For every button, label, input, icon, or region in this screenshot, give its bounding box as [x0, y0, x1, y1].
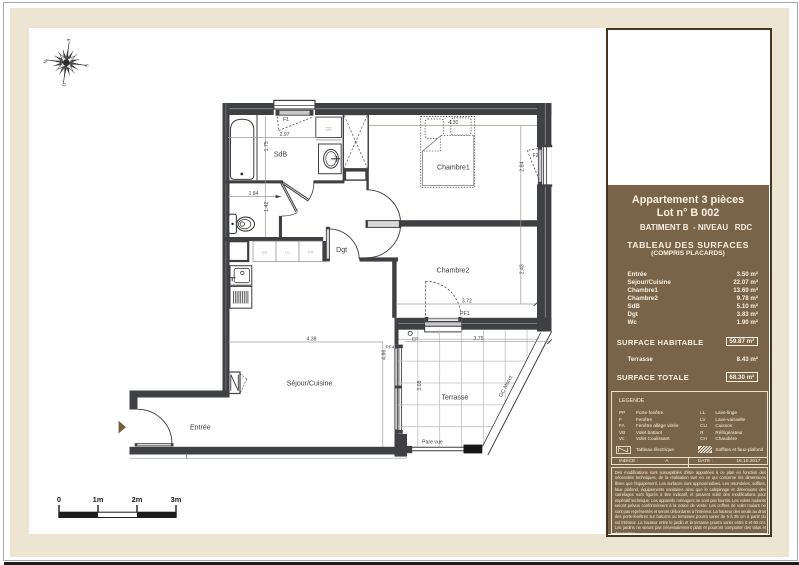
svg-text:Séjour/Cuisine: Séjour/Cuisine — [287, 381, 333, 388]
svg-text:Pare vue: Pare vue — [422, 440, 443, 446]
svg-text:3.75: 3.75 — [473, 336, 483, 342]
svg-text:1.75: 1.75 — [264, 141, 270, 151]
svg-text:4.38: 4.38 — [306, 336, 316, 342]
svg-text:4.30: 4.30 — [448, 120, 458, 126]
svg-text:4.86: 4.86 — [381, 350, 387, 360]
svg-text:CU: CU — [262, 250, 268, 254]
svg-text:GC Moret: GC Moret — [498, 374, 514, 398]
svg-text:3m: 3m — [171, 495, 182, 504]
svg-text:S: S — [84, 63, 89, 67]
svg-text:E: E — [66, 38, 71, 42]
svg-text:1.42: 1.42 — [264, 202, 270, 212]
svg-text:2.97: 2.97 — [279, 132, 289, 138]
svg-text:2m: 2m — [132, 495, 143, 504]
svg-text:Chambre2: Chambre2 — [437, 268, 470, 275]
svg-text:F1: F1 — [283, 117, 289, 123]
svg-text:Dgt: Dgt — [336, 247, 347, 254]
svg-text:PF1: PF1 — [460, 311, 470, 317]
svg-text:1m: 1m — [93, 495, 104, 504]
svg-text:Entrée: Entrée — [190, 424, 211, 431]
svg-text:F2: F2 — [532, 153, 538, 159]
svg-text:Terrasse: Terrasse — [441, 395, 468, 402]
svg-text:LV: LV — [285, 250, 290, 254]
svg-text:3.72: 3.72 — [462, 298, 472, 304]
svg-text:0: 0 — [57, 495, 61, 504]
svg-text:PF4: PF4 — [385, 344, 394, 350]
svg-text:N: N — [43, 60, 48, 64]
svg-text:O: O — [61, 82, 67, 87]
svg-text:1.84: 1.84 — [248, 191, 258, 197]
svg-text:3.08: 3.08 — [417, 380, 423, 390]
svg-text:SdB: SdB — [274, 151, 288, 158]
svg-text:2.84: 2.84 — [519, 162, 525, 172]
svg-text:Chambre1: Chambre1 — [437, 165, 470, 172]
svg-text:2.43: 2.43 — [519, 264, 525, 274]
svg-text:FR: FR — [308, 250, 313, 254]
